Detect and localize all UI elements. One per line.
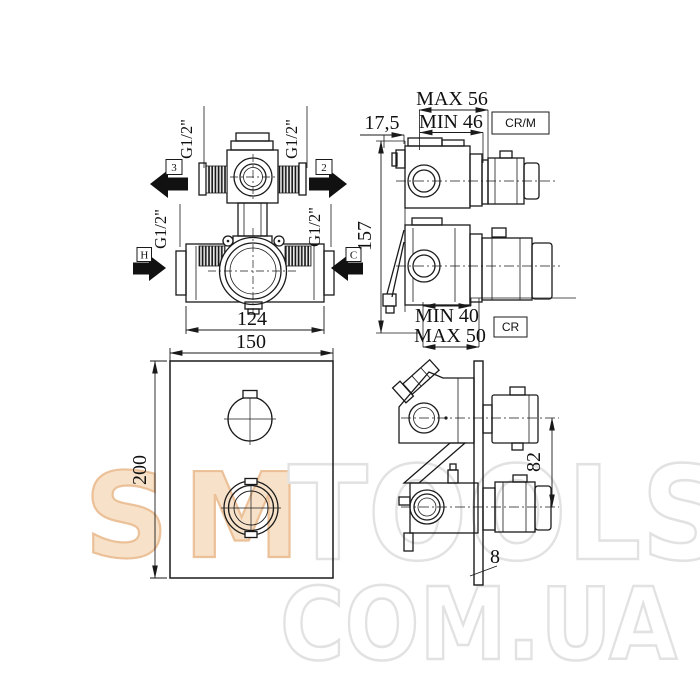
drawing-canvas: SM TOOLS COM.UA [0, 0, 700, 700]
dim-max56-label: MAX 56 [416, 88, 488, 110]
side-lower-valve [383, 218, 560, 313]
dim-min40-label: MIN 40 [415, 305, 479, 327]
side-view: 17,5 157 MAX 56 MIN 46 CR/M [354, 88, 576, 347]
thread-label-top-left: G1/2" [177, 119, 196, 159]
dim-82-label: 82 [523, 452, 545, 472]
outlet-2-label: 2 [321, 162, 327, 174]
dim-200-label: 200 [129, 455, 151, 485]
thread-label-mid-right: G1/2" [305, 207, 324, 247]
dim-157: 157 [354, 141, 420, 333]
finish-code-bottom: CR [494, 317, 527, 337]
dim-min46-label: MIN 46 [419, 111, 483, 133]
dim-17-5: 17,5 [360, 112, 404, 148]
dim-17-5-label: 17,5 [365, 112, 400, 134]
watermark-brand-left: SM [84, 447, 314, 585]
dim-124-label: 124 [237, 308, 267, 330]
dim-124: 124 [186, 306, 324, 334]
dim-top-depth: MAX 56 MIN 46 [416, 88, 488, 163]
installed-upper-valve [393, 360, 559, 450]
inlet-hot-label: H [140, 250, 148, 262]
thread-label-top-right: G1/2" [282, 119, 301, 159]
outlet-3-label: 3 [171, 162, 177, 174]
thread-label-mid-left: G1/2" [151, 209, 170, 249]
dim-150: 150 [170, 331, 333, 361]
dim-bottom-depth: MIN 40 MAX 50 [414, 298, 576, 347]
finish-code-top: CR/M [492, 112, 549, 134]
dim-157-label: 157 [354, 221, 376, 251]
thermostat-knob [224, 391, 276, 446]
finish-code-top-label: CR/M [505, 116, 536, 130]
dim-max50-label: MAX 50 [414, 325, 486, 347]
front-view: 3 2 H C G1/2" G1/2" G1/2" G1/2" 124 [133, 106, 363, 334]
watermark: SM TOOLS COM.UA [84, 439, 700, 683]
technical-drawing: SM TOOLS COM.UA [0, 0, 700, 700]
finish-code-bottom-label: CR [502, 320, 520, 334]
side-upper-valve [392, 138, 556, 208]
dim-150-label: 150 [236, 331, 266, 353]
dim-8-label: 8 [490, 546, 500, 568]
